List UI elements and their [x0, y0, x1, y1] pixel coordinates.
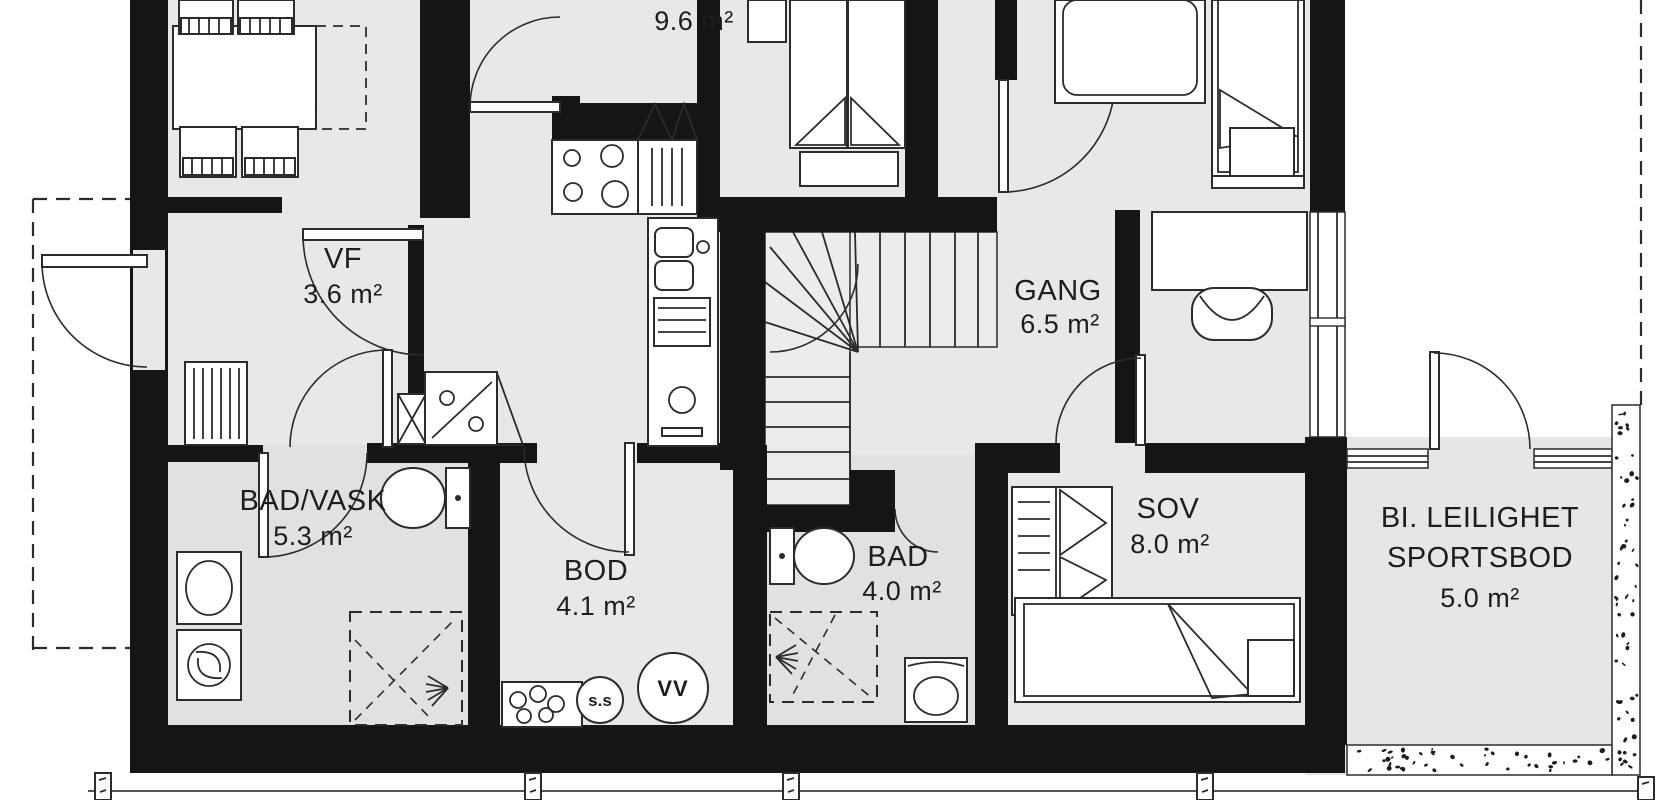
bad-name-label: BAD — [867, 541, 928, 573]
sov-name-label: SOV — [1137, 493, 1200, 525]
wall-bad-sov — [975, 455, 1008, 727]
sportsbod-name1-label: BI. LEILIGHET — [1381, 502, 1579, 534]
south-wall — [130, 725, 1345, 773]
water-heater-label: VV — [657, 676, 688, 701]
wall-vf-thin — [408, 225, 424, 395]
toilet-icon — [381, 468, 470, 528]
wall-corridor — [995, 0, 1017, 80]
sportsbod-area-label: 5.0 m² — [1440, 583, 1520, 613]
kitchen-sink-icon — [648, 218, 718, 446]
entrance-door-icon — [42, 250, 165, 370]
east-wall-upper — [1310, 0, 1345, 212]
sportsbod-window-left-icon — [1347, 449, 1428, 468]
wall-stairs-left — [720, 218, 765, 470]
west-wall — [130, 0, 168, 773]
bod-name-label: BOD — [564, 555, 628, 587]
foundation — [88, 773, 1655, 800]
wardrobe-icon — [1012, 487, 1112, 615]
wall-dining-vf — [130, 197, 282, 213]
floor-drain-label: s.s — [588, 691, 612, 710]
floor-plan: s.s VV — [0, 0, 1670, 800]
sportsbod-name2-label: SPORTSBOD — [1387, 542, 1573, 574]
washing-machine-2-icon — [905, 658, 967, 722]
dresser-icon — [1055, 0, 1205, 103]
gang-name-label: GANG — [1014, 275, 1101, 307]
bad-vask-name-label: BAD/VASK — [240, 485, 387, 517]
sportsbod-window-right-icon — [1534, 449, 1612, 468]
washing-machine-icon — [177, 552, 241, 624]
sink-unit-icon — [502, 682, 582, 727]
single-bed-top-icon — [1212, 0, 1304, 188]
toilet-2-icon — [770, 528, 854, 584]
stove-icon — [552, 140, 638, 214]
sportsbod-stipple-wall-right — [1612, 405, 1640, 775]
bod-area-label: 4.1 m² — [556, 591, 636, 621]
desk-icon — [1152, 212, 1307, 290]
floor-drain-symbol: s.s — [577, 677, 623, 723]
single-bed-sov-icon — [1015, 598, 1300, 702]
radiator-icon — [185, 362, 247, 445]
wall-badvask-bod — [468, 443, 500, 727]
wall-sov-top-right — [1145, 443, 1310, 473]
bad-area-label: 4.0 m² — [862, 576, 942, 606]
wall-badvask-top-left — [168, 445, 263, 462]
wall-bad-jog — [850, 470, 895, 510]
vf-area-label: 3.6 m² — [303, 279, 383, 309]
wall-bod-bad — [733, 445, 767, 727]
water-heater-symbol: VV — [638, 653, 708, 723]
wall-sportsbod-left — [1305, 437, 1347, 745]
foundation-posts — [95, 773, 1654, 800]
sportsbod-door-icon — [1430, 352, 1530, 449]
sov-area-label: 8.0 m² — [1130, 529, 1210, 559]
east-window-icon — [1310, 212, 1345, 437]
floor-plan-page: s.s VV — [0, 0, 1670, 800]
gang-area-label: 6.5 m² — [1020, 309, 1100, 339]
wall-dining-kitchen — [420, 0, 470, 218]
kitchen-area-label: 9.6 m² — [654, 6, 734, 36]
vf-name-label: VF — [324, 243, 362, 275]
bad-vask-area-label: 5.3 m² — [273, 521, 353, 551]
desk-chair-icon — [1192, 288, 1272, 340]
wall-bedroom-right — [905, 0, 938, 218]
tumble-dryer-icon — [177, 630, 241, 700]
